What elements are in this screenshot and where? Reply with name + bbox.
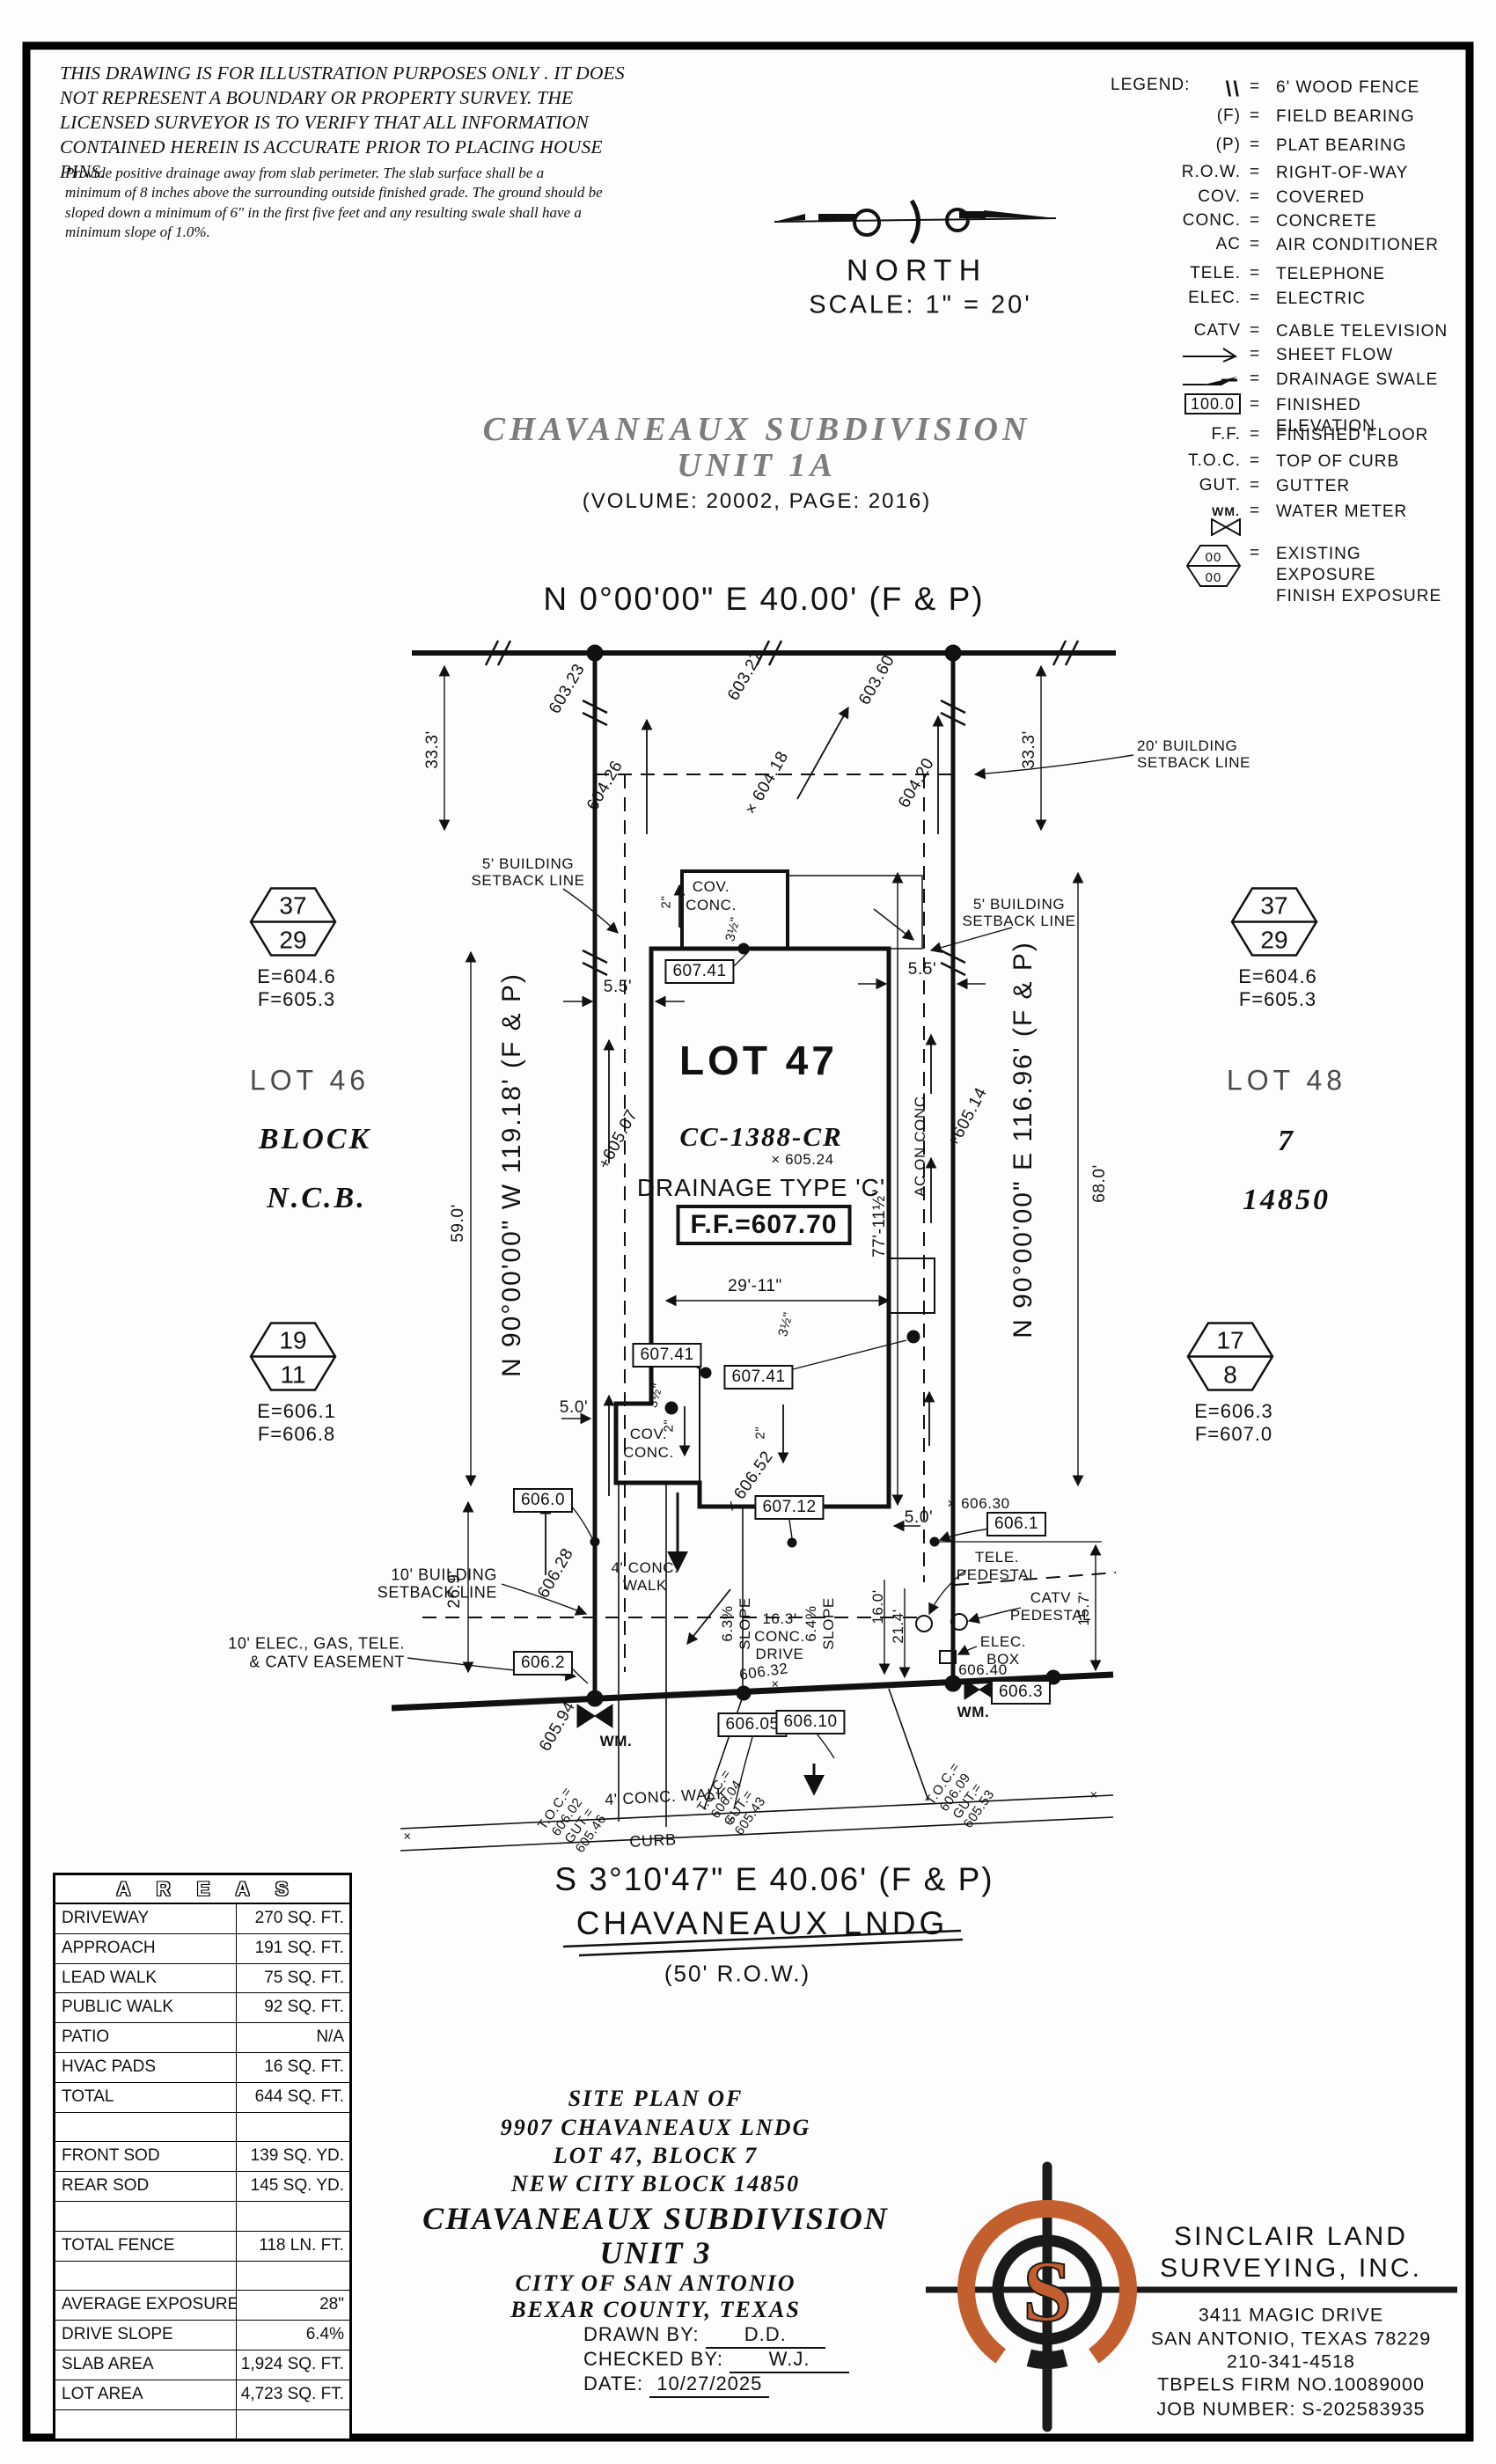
subdivision-title-line1: CHAVANEAUX SUBDIVISION <box>483 410 1031 449</box>
north-label: NORTH <box>847 254 987 289</box>
spot-label: 5.0' <box>560 1398 588 1418</box>
sheet-flow-icon <box>1183 345 1241 363</box>
equals-sign: = <box>1250 235 1259 254</box>
spot-label: AC ON CONC. <box>912 1091 929 1197</box>
spot-label: 604.26 <box>583 758 627 814</box>
toc-gutter-group: T.O.C.=606.02GUT.=605.46 <box>536 1785 612 1858</box>
toc-gutter-group: T.O.C.=606.04GUT.=605.43 <box>695 1767 771 1840</box>
exposure-existing-elevation: E=604.6 <box>1238 965 1317 988</box>
legend-row: =DRAINAGE SWALE <box>1111 370 1463 396</box>
legend-desc: EXISTING EXPOSUREFINISH EXPOSURE <box>1276 544 1463 606</box>
area-label: HVAC PADS <box>55 2053 237 2082</box>
legend-row: \\=6' WOOD FENCE <box>1111 77 1463 104</box>
text-line: LICENSED SURVEYOR IS TO VERIFY THAT ALL … <box>60 111 649 136</box>
siteplan-line5: CHAVANEAUX SUBDIVISION <box>422 2200 889 2237</box>
street-name: CHAVANEAUX LNDG <box>576 1905 949 1942</box>
spot-label: 15.7' <box>1075 1591 1093 1625</box>
text-line: NOT REPRESENT A BOUNDARY OR PROPERTY SUR… <box>60 86 649 111</box>
spot-label: 603.27 <box>724 648 768 704</box>
area-value: 6.4% <box>237 2321 349 2350</box>
spot-label: 59.0' <box>449 1204 468 1243</box>
areas-table-row: PATION/A <box>55 2023 349 2053</box>
subdivision-volume: (VOLUME: 20002, PAGE: 2016) <box>583 489 931 514</box>
date-value: 10/27/2025 <box>649 2372 769 2398</box>
drainage-swale-icon <box>1183 370 1241 389</box>
drawn-by-value: D.D. <box>706 2323 825 2349</box>
spot-label: SETBACK LINE <box>378 1584 497 1602</box>
spot-label: SETBACK LINE <box>962 913 1075 930</box>
spot-label: 5.5' <box>908 960 936 979</box>
spot-label: 2" <box>662 1419 677 1433</box>
area-label <box>55 2113 237 2142</box>
areas-table-row <box>55 2113 349 2143</box>
area-value <box>237 2202 349 2231</box>
exposure-hexagon: 1911 <box>249 1321 337 1397</box>
area-label: APPROACH <box>55 1934 237 1963</box>
areas-table-row: LEAD WALK75 SQ. FT. <box>55 1964 349 1994</box>
spot-label: CONC. <box>754 1628 805 1646</box>
spot-label: CURB <box>629 1830 677 1852</box>
spot-label: ELEC. <box>980 1633 1026 1651</box>
area-label: AVERAGE EXPOSURE <box>55 2291 237 2320</box>
spot-label: 4' CONC. <box>611 1559 678 1577</box>
areas-table-row: AVERAGE EXPOSURE28" <box>55 2291 349 2321</box>
area-value: 139 SQ. YD. <box>237 2142 349 2171</box>
areas-table-row: TOTAL644 SQ. FT. <box>55 2083 349 2113</box>
legend-abbrev: TELE. <box>1190 264 1241 282</box>
areas-table-row: APPROACH191 SQ. FT. <box>55 1934 349 1964</box>
siteplan-line3: LOT 47, BLOCK 7 <box>554 2143 758 2169</box>
legend-row: (P)=PLAT BEARING <box>1111 136 1463 162</box>
company-address2: SAN ANTONIO, TEXAS 78229 <box>1151 2328 1431 2350</box>
boxed-elevation-label: 606.10 <box>775 1710 845 1734</box>
exposure-existing-elevation: E=604.6 <box>257 965 336 988</box>
spot-label: 29'-11" <box>728 1277 782 1296</box>
water-meter-icon: WM. <box>1211 505 1241 536</box>
legend-abbrev: COV. <box>1198 187 1241 206</box>
legend-desc: COVERED <box>1276 187 1365 209</box>
area-label: DRIVEWAY <box>55 1904 237 1933</box>
legend-abbrev: (F) <box>1217 106 1241 125</box>
site-plan-sheet: S THIS DRAWING IS FOR ILLUSTRATION PURPO… <box>0 0 1496 2464</box>
boxed-elevation-label: 607.12 <box>754 1495 824 1520</box>
equals-sign: = <box>1250 476 1259 495</box>
bearing-north: N 0°00'00" E 40.00' (F & P) <box>543 581 984 618</box>
equals-sign: = <box>1250 289 1259 308</box>
areas-table-row <box>55 2410 349 2439</box>
equals-sign: = <box>1250 163 1259 182</box>
drawn-by-row: DRAWN BY: D.D. <box>583 2323 825 2349</box>
svg-text:00: 00 <box>1206 570 1222 585</box>
spot-label: × 605.24 <box>771 1151 833 1169</box>
spot-label: 3½" <box>645 1382 666 1409</box>
legend-row: GUT.=GUTTER <box>1111 476 1463 502</box>
spot-label: 5.0' <box>905 1508 933 1528</box>
siteplan-line4: NEW CITY BLOCK 14850 <box>511 2171 800 2197</box>
siteplan-line8: BEXAR COUNTY, TEXAS <box>510 2297 801 2323</box>
date-row: DATE: 10/27/2025 <box>583 2372 769 2398</box>
legend-row: T.O.C.=TOP OF CURB <box>1111 451 1463 478</box>
area-label: FRONT SOD <box>55 2142 237 2171</box>
lot47-drainage-type: DRAINAGE TYPE 'C' <box>637 1174 885 1202</box>
legend-row: AC=AIR CONDITIONER <box>1111 235 1463 261</box>
spot-label: × <box>403 1830 411 1844</box>
siteplan-line2: 9907 CHAVANEAUX LNDG <box>501 2115 811 2141</box>
lot47-plan-number: CC-1388-CR <box>679 1121 842 1153</box>
text-line: THIS DRAWING IS FOR ILLUSTRATION PURPOSE… <box>60 62 649 86</box>
equals-sign: = <box>1250 425 1259 444</box>
area-value: 191 SQ. FT. <box>237 1934 349 1963</box>
spot-label: 6.3% <box>719 1605 737 1641</box>
exposure-existing-elevation: E=606.1 <box>257 1400 336 1423</box>
boxed-elevation-label: 607.41 <box>723 1365 793 1390</box>
drawn-by-label: DRAWN BY: <box>583 2323 700 2345</box>
area-value: 16 SQ. FT. <box>237 2053 349 2082</box>
spot-label: CONC. <box>686 897 737 914</box>
spot-label: 21.4' <box>890 1609 907 1643</box>
spot-label: 10' ELEC., GAS, TELE. <box>228 1635 405 1654</box>
boxed-elevation-label: 606.2 <box>513 1651 573 1676</box>
spot-label: 3½" <box>775 1310 796 1338</box>
areas-table-row: FRONT SOD139 SQ. YD. <box>55 2142 349 2172</box>
areas-table-title: A R E A S <box>55 1875 349 1904</box>
legend-row: =SHEET FLOW <box>1111 345 1463 371</box>
lot47-name: LOT 47 <box>679 1037 838 1084</box>
legend-abbrev: GUT. <box>1199 476 1241 495</box>
legend-abbrev: AC <box>1216 235 1241 253</box>
spot-label: WM. <box>957 1704 990 1721</box>
siteplan-line1: SITE PLAN OF <box>568 2086 744 2112</box>
exposure-hexagon: 178 <box>1186 1321 1274 1397</box>
siteplan-line6: UNIT 3 <box>600 2234 712 2271</box>
areas-table-row: PUBLIC WALK92 SQ. FT. <box>55 1993 349 2023</box>
svg-text:00: 00 <box>1206 550 1222 565</box>
boxed-elevation-label: 606.1 <box>986 1512 1046 1536</box>
boxed-elevation-label: 606.0 <box>513 1488 573 1513</box>
bearing-west: N 90°00'00" W 119.18' (F & P) <box>497 972 527 1377</box>
equals-sign: = <box>1250 345 1259 364</box>
spot-label: 2" <box>659 896 674 909</box>
spot-label: & CATV EASEMENT <box>249 1654 405 1672</box>
spot-label: SETBACK LINE <box>471 872 584 890</box>
area-value: 270 SQ. FT. <box>237 1904 349 1933</box>
area-value <box>237 2113 349 2142</box>
svg-text:19: 19 <box>279 1327 306 1354</box>
legend-desc: ELECTRIC <box>1276 289 1366 310</box>
scale-label: SCALE: 1" = 20' <box>809 291 1031 320</box>
exposure-finish-elevation: F=606.8 <box>258 1423 335 1446</box>
spot-label: 20' BUILDING <box>1137 737 1237 755</box>
area-value: 145 SQ. YD. <box>237 2172 349 2201</box>
company-name-line2: SURVEYING, INC. <box>1160 2254 1422 2284</box>
equals-sign: = <box>1250 395 1259 414</box>
legend-abbrev: CONC. <box>1183 211 1241 230</box>
spot-label: CONC. <box>623 1444 674 1462</box>
hexagon-icon: 3729 <box>249 886 337 958</box>
checked-by-label: CHECKED BY: <box>583 2348 723 2370</box>
exposure-finish-elevation: F=605.3 <box>258 988 335 1011</box>
checked-by-value: W.J. <box>730 2348 849 2373</box>
spot-label: 2" <box>753 1426 768 1440</box>
text-line: minimum of 8 inches above the surroundin… <box>65 183 655 202</box>
spot-label: 68.0' <box>1090 1164 1110 1203</box>
legend-desc: WATER METER <box>1276 502 1407 523</box>
area-label: PUBLIC WALK <box>55 1993 237 2022</box>
spot-label: 5' BUILDING <box>482 855 574 873</box>
spot-label: COV. <box>693 878 730 896</box>
svg-text:8: 8 <box>1223 1361 1237 1389</box>
area-label: PATIO <box>55 2023 237 2052</box>
areas-table-row: DRIVE SLOPE6.4% <box>55 2321 349 2350</box>
legend-row: ELEC.=ELECTRIC <box>1111 289 1463 315</box>
company-phone: 210-341-4518 <box>1227 2351 1355 2373</box>
area-value: N/A <box>237 2023 349 2052</box>
text-line: Provide positive drainage away from slab… <box>65 164 655 183</box>
spot-label: 6.4% <box>803 1605 820 1641</box>
area-value <box>237 2262 349 2291</box>
spot-label: CATV <box>1030 1589 1071 1607</box>
spot-label: WM. <box>600 1733 633 1750</box>
area-value <box>237 2410 349 2439</box>
areas-table: A R E A S DRIVEWAY270 SQ. FT.APPROACH191… <box>53 1873 352 2441</box>
text-line: minimum slope of 1.0%. <box>65 223 655 242</box>
boxed-elevation-label: 607.41 <box>664 959 734 984</box>
spot-label: 5' BUILDING <box>973 896 1065 913</box>
lot46-name: LOT 46 <box>250 1065 370 1097</box>
spot-label: +605.14 <box>944 1084 992 1150</box>
areas-table-row: LOT AREA4,723 SQ. FT. <box>55 2380 349 2410</box>
areas-table-row: REAR SOD145 SQ. YD. <box>55 2172 349 2202</box>
equals-sign: = <box>1250 321 1259 341</box>
area-label: LOT AREA <box>55 2380 237 2409</box>
spot-label: 606.32 <box>738 1660 789 1684</box>
equals-sign: = <box>1250 136 1259 155</box>
legend-row: CONC.=CONCRETE <box>1111 211 1463 238</box>
area-label: LEAD WALK <box>55 1964 237 1993</box>
lot46-ncb: N.C.B. <box>267 1182 366 1215</box>
svg-text:37: 37 <box>1260 892 1287 920</box>
legend-desc: DRAINAGE SWALE <box>1276 370 1438 391</box>
area-label <box>55 2262 237 2291</box>
lot48-block: 7 <box>1278 1125 1295 1158</box>
spot-label: +605.07 <box>595 1106 642 1172</box>
legend-abbrev: (P) <box>1216 136 1241 154</box>
legend-desc: FINISHED FLOOR <box>1276 425 1428 446</box>
area-value: 92 SQ. FT. <box>237 1993 349 2022</box>
spot-label: TELE. <box>975 1549 1019 1566</box>
spot-label: 3½" <box>722 915 744 942</box>
bearing-east: N 90°00'00" E 116.96' (F & P) <box>1008 941 1038 1338</box>
finished-elevation-icon: 100.0 <box>1184 393 1241 414</box>
spot-label: WALK <box>623 1577 667 1595</box>
spot-label: SLOPE <box>820 1597 838 1650</box>
exposure-existing-elevation: E=606.3 <box>1194 1400 1273 1423</box>
spot-label: PEDESTAL <box>957 1566 1038 1584</box>
legend-row: 100.0=FINISHED ELEVATION <box>1111 395 1463 422</box>
area-label: TOTAL <box>55 2083 237 2112</box>
boxed-elevation-label: 607.41 <box>632 1343 701 1368</box>
area-label: SLAB AREA <box>55 2350 237 2380</box>
lot48-ncb: 14850 <box>1243 1184 1331 1217</box>
svg-text:17: 17 <box>1216 1327 1243 1354</box>
spot-label: 16.0' <box>869 1589 887 1624</box>
legend-desc: AIR CONDITIONER <box>1276 235 1439 256</box>
areas-table-row: HVAC PADS16 SQ. FT. <box>55 2053 349 2083</box>
company-name-line1: SINCLAIR LAND <box>1174 2222 1408 2252</box>
spot-label: SLOPE <box>737 1597 754 1650</box>
legend-row: F.F.=FINISHED FLOOR <box>1111 425 1463 451</box>
spot-label: 33.3' <box>1020 730 1039 769</box>
legend-row: WM.=WATER METER <box>1111 502 1463 528</box>
area-value: 644 SQ. FT. <box>237 2083 349 2112</box>
equals-sign: = <box>1250 264 1259 283</box>
area-value: 118 LN. FT. <box>237 2232 349 2261</box>
legend-desc: TOP OF CURB <box>1276 451 1399 473</box>
exposure-hexagon: 3729 <box>249 886 337 963</box>
area-value: 75 SQ. FT. <box>237 1964 349 1993</box>
area-value: 4,723 SQ. FT. <box>237 2380 349 2409</box>
area-label: DRIVE SLOPE <box>55 2321 237 2350</box>
spot-label: 33.3' <box>423 730 443 769</box>
spot-label: 16.3' <box>762 1610 796 1628</box>
legend-desc: PLAT BEARING <box>1276 136 1407 157</box>
legend-abbrev: ELEC. <box>1188 289 1241 307</box>
equals-sign: = <box>1250 77 1259 97</box>
company-firm-number: TBPELS FIRM NO.10089000 <box>1157 2374 1425 2396</box>
legend-desc: SHEET FLOW <box>1276 345 1393 366</box>
equals-sign: = <box>1250 544 1259 563</box>
spot-label: SETBACK LINE <box>1137 754 1250 772</box>
legend-desc: CABLE TELEVISION <box>1276 321 1448 342</box>
spot-label: 5.5' <box>604 978 632 997</box>
hexagon-icon: 178 <box>1186 1321 1274 1393</box>
spot-label: 603.23 <box>546 661 590 717</box>
area-value: 1,924 SQ. FT. <box>237 2350 349 2380</box>
legend-row: COV.=COVERED <box>1111 187 1463 214</box>
lot48-name: LOT 48 <box>1227 1065 1346 1097</box>
toc-gutter-group: T.O.C.=606.09GUT.=605.53 <box>924 1760 1000 1833</box>
hexagon-icon: 1911 <box>249 1321 337 1393</box>
legend-row: R.O.W.=RIGHT-OF-WAY <box>1111 163 1463 189</box>
legend-abbrev: R.O.W. <box>1182 163 1241 181</box>
legend-desc: GUTTER <box>1276 476 1350 497</box>
exposure-hexagon-icon: 0000 <box>1186 544 1241 588</box>
svg-text:29: 29 <box>1260 927 1287 954</box>
street-row-width: (50' R.O.W.) <box>664 1961 810 1988</box>
equals-sign: = <box>1250 187 1259 207</box>
legend-desc: CONCRETE <box>1276 211 1377 232</box>
date-label: DATE: <box>583 2372 643 2394</box>
exposure-finish-elevation: F=605.3 <box>1239 988 1316 1011</box>
legend-desc: TELEPHONE <box>1276 264 1385 285</box>
equals-sign: = <box>1250 211 1259 231</box>
exposure-hexagon: 3729 <box>1230 886 1318 963</box>
exposure-finish-elevation: F=607.0 <box>1195 1423 1272 1446</box>
disclaimer-note: Provide positive drainage away from slab… <box>65 164 655 243</box>
text-line: sloped down a minimum of 6" in the first… <box>65 203 655 223</box>
finished-floor-elevation: F.F.=607.70 <box>677 1205 852 1245</box>
spot-label: 606.28 <box>534 1545 578 1602</box>
legend-desc: RIGHT-OF-WAY <box>1276 163 1408 184</box>
areas-table-row <box>55 2202 349 2232</box>
spot-label: 10' BUILDING <box>391 1566 497 1585</box>
spot-label: 77'-11½" <box>870 1189 890 1258</box>
legend-row: (F)=FIELD BEARING <box>1111 106 1463 133</box>
company-job-number: JOB NUMBER: S-202583935 <box>1156 2399 1425 2421</box>
area-label: REAR SOD <box>55 2172 237 2201</box>
spot-label: × <box>771 1677 779 1692</box>
area-value: 28" <box>237 2291 349 2320</box>
legend-row: CATV=CABLE TELEVISION <box>1111 321 1463 348</box>
spot-label: 603.60 <box>855 652 899 708</box>
legend-abbrev: CATV <box>1194 321 1241 340</box>
areas-table-row: TOTAL FENCE118 LN. FT. <box>55 2232 349 2262</box>
equals-sign: = <box>1250 451 1259 471</box>
spot-label: 605.94 <box>536 1698 580 1755</box>
boxed-elevation-label: 606.3 <box>991 1680 1051 1705</box>
svg-text:37: 37 <box>279 892 306 920</box>
areas-table-row: DRIVEWAY270 SQ. FT. <box>55 1904 349 1934</box>
spot-label: × 604.18 <box>742 748 794 818</box>
equals-sign: = <box>1250 106 1259 126</box>
equals-sign: = <box>1250 502 1259 521</box>
areas-table-row <box>55 2262 349 2292</box>
svg-text:29: 29 <box>279 927 306 954</box>
company-address1: 3411 MAGIC DRIVE <box>1199 2305 1383 2327</box>
legend-abbrev: F.F. <box>1211 425 1241 444</box>
bearing-south: S 3°10'47" E 40.06' (F & P) <box>554 1861 994 1898</box>
legend-desc: FIELD BEARING <box>1276 106 1415 128</box>
equals-sign: = <box>1250 370 1259 389</box>
wood-fence-icon: \\ <box>1226 77 1241 101</box>
legend-row: TELE.=TELEPHONE <box>1111 264 1463 290</box>
area-label <box>55 2410 237 2439</box>
hexagon-icon: 3729 <box>1230 886 1318 958</box>
areas-table-row: SLAB AREA1,924 SQ. FT. <box>55 2350 349 2380</box>
spot-label: 606.40 <box>958 1661 1008 1679</box>
area-label <box>55 2202 237 2231</box>
lot46-block: BLOCK <box>259 1123 371 1156</box>
legend-desc: 6' WOOD FENCE <box>1276 77 1419 99</box>
spot-label: × <box>1089 1788 1097 1803</box>
spot-label: × 606.30 <box>947 1495 1009 1513</box>
checked-by-row: CHECKED BY: W.J. <box>583 2348 849 2373</box>
spot-label: 604.20 <box>895 755 939 811</box>
legend-abbrev: T.O.C. <box>1188 451 1241 470</box>
legend-row: 0000=EXISTING EXPOSUREFINISH EXPOSURE <box>1111 544 1463 570</box>
area-label: TOTAL FENCE <box>55 2232 237 2261</box>
subdivision-title-line2: UNIT 1A <box>677 446 837 485</box>
siteplan-line7: CITY OF SAN ANTONIO <box>516 2270 796 2297</box>
annotation-overlay: THIS DRAWING IS FOR ILLUSTRATION PURPOSE… <box>0 0 1496 2464</box>
svg-text:11: 11 <box>280 1361 305 1389</box>
